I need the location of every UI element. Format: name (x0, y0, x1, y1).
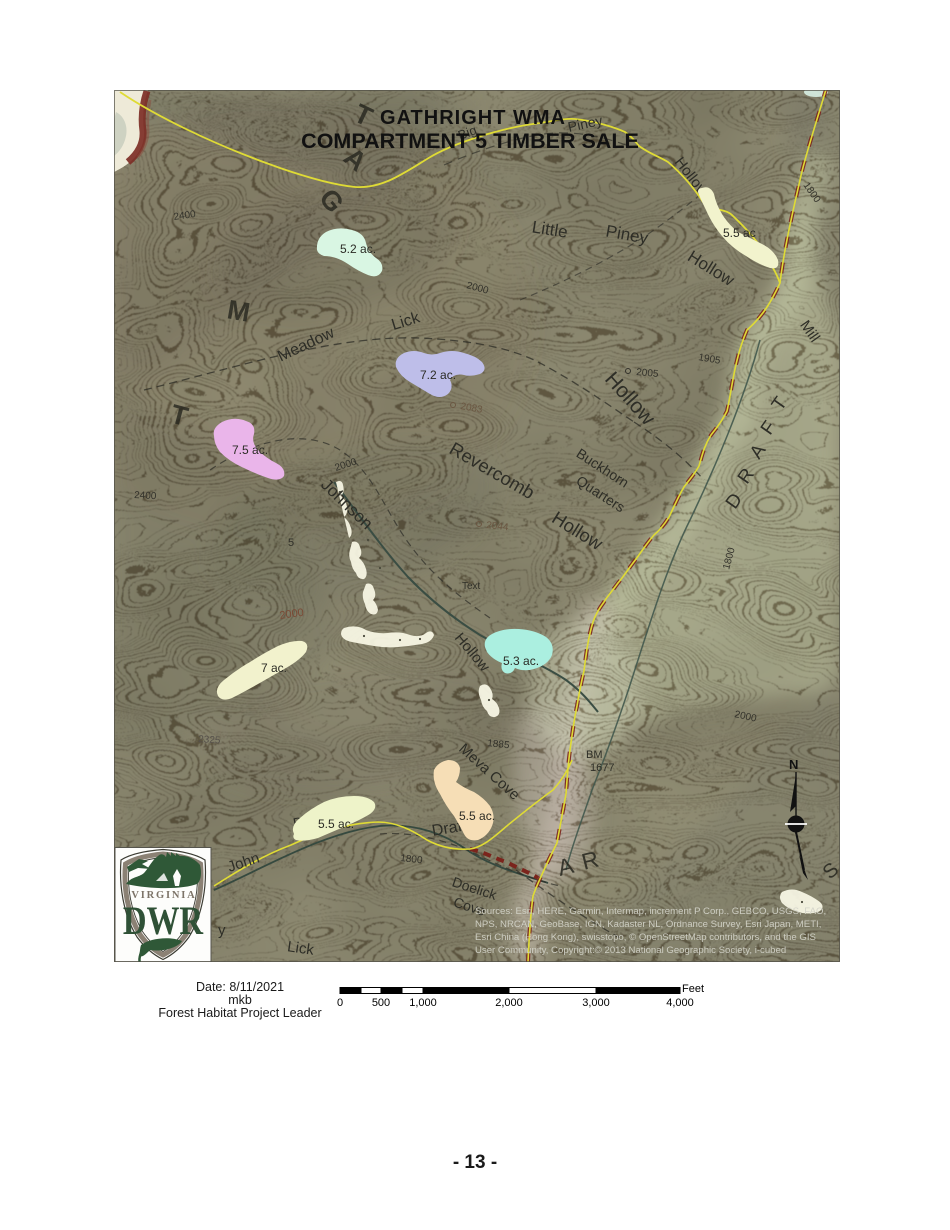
svg-text:BM: BM (586, 749, 603, 761)
svg-text:5.2 ac.: 5.2 ac. (340, 242, 376, 256)
svg-text:0: 0 (337, 997, 343, 1009)
svg-text:N: N (789, 757, 798, 772)
svg-text:GATHRIGHT WMA: GATHRIGHT WMA (380, 107, 566, 129)
svg-text:Text: Text (462, 581, 481, 592)
svg-text:7.2 ac.: 7.2 ac. (420, 368, 456, 382)
svg-text:Sources: Esri, HERE, Garmin, I: Sources: Esri, HERE, Garmin, Intermap, i… (475, 906, 826, 917)
svg-text:User Community, Copyright:© 20: User Community, Copyright:© 2013 Nationa… (475, 945, 786, 956)
svg-text:5.5 ac.: 5.5 ac. (318, 817, 354, 831)
svg-text:2325: 2325 (198, 734, 221, 747)
svg-text:2005: 2005 (636, 367, 660, 380)
svg-text:5: 5 (288, 537, 294, 549)
svg-text:DWR: DWR (123, 898, 204, 943)
svg-text:2400: 2400 (134, 490, 157, 502)
svg-text:4,000: 4,000 (666, 997, 694, 1009)
svg-text:Feet: Feet (682, 983, 704, 995)
svg-text:NPS, NRCAN, GeoBase, IGN, Kada: NPS, NRCAN, GeoBase, IGN, Kadaster NL, O… (475, 919, 821, 930)
svg-text:7.5 ac.: 7.5 ac. (232, 443, 268, 457)
svg-text:COMPARTMENT 5 TIMBER SALE: COMPARTMENT 5 TIMBER SALE (301, 129, 639, 153)
svg-text:1677: 1677 (590, 762, 614, 774)
svg-text:1,000: 1,000 (409, 997, 437, 1009)
svg-text:y: y (218, 922, 226, 939)
svg-text:Esri China (Hong Kong), swisst: Esri China (Hong Kong), swisstopo, © Ope… (475, 932, 816, 943)
svg-text:7 ac.: 7 ac. (261, 661, 287, 675)
svg-text:500: 500 (372, 997, 390, 1009)
svg-text:2,000: 2,000 (495, 997, 523, 1009)
svg-text:5.3 ac.: 5.3 ac. (503, 654, 539, 668)
svg-text:3,000: 3,000 (582, 997, 610, 1009)
svg-text:5.5 ac.: 5.5 ac. (459, 809, 495, 823)
svg-text:5.5 ac: 5.5 ac (723, 226, 756, 240)
